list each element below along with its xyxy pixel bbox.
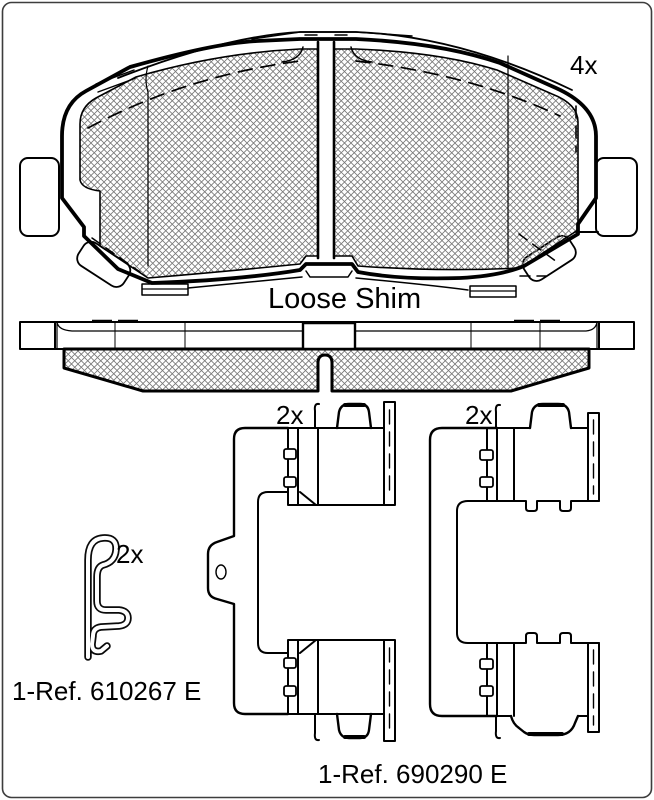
pad-front-quantity-label: 4x bbox=[570, 50, 597, 80]
clip-right-notch-4 bbox=[480, 686, 493, 696]
spring-ref-label: 1-Ref. 610267 E bbox=[12, 676, 201, 706]
parts-diagram-page: 4x Loose Shim 2x bbox=[0, 0, 654, 800]
clip-left-notch-4 bbox=[284, 686, 296, 696]
center-slot bbox=[318, 42, 334, 258]
clip-left-notch-1 bbox=[284, 449, 296, 459]
clip-right-quantity-label: 2x bbox=[465, 400, 492, 430]
plate-right-cap bbox=[599, 322, 634, 349]
plate-center-block bbox=[303, 323, 355, 349]
plate-left-cap bbox=[20, 322, 55, 349]
clip-left-notch-2 bbox=[284, 477, 296, 487]
clip-right-notch-3 bbox=[480, 659, 493, 669]
clip-right-notch-1 bbox=[480, 450, 493, 460]
kit-ref-label: 1-Ref. 690290 E bbox=[318, 759, 507, 789]
clip-right-notch-2 bbox=[480, 477, 493, 487]
right-ear-tab bbox=[596, 158, 637, 236]
loose-shim-label: Loose Shim bbox=[268, 283, 421, 315]
spring-quantity-label: 2x bbox=[116, 539, 143, 569]
clip-left-notch-3 bbox=[284, 658, 296, 668]
clip-left-quantity-label: 2x bbox=[276, 400, 303, 430]
brake-pad-fitting-kit-drawing: 4x Loose Shim 2x bbox=[0, 0, 654, 800]
left-ear-tab bbox=[20, 158, 59, 236]
